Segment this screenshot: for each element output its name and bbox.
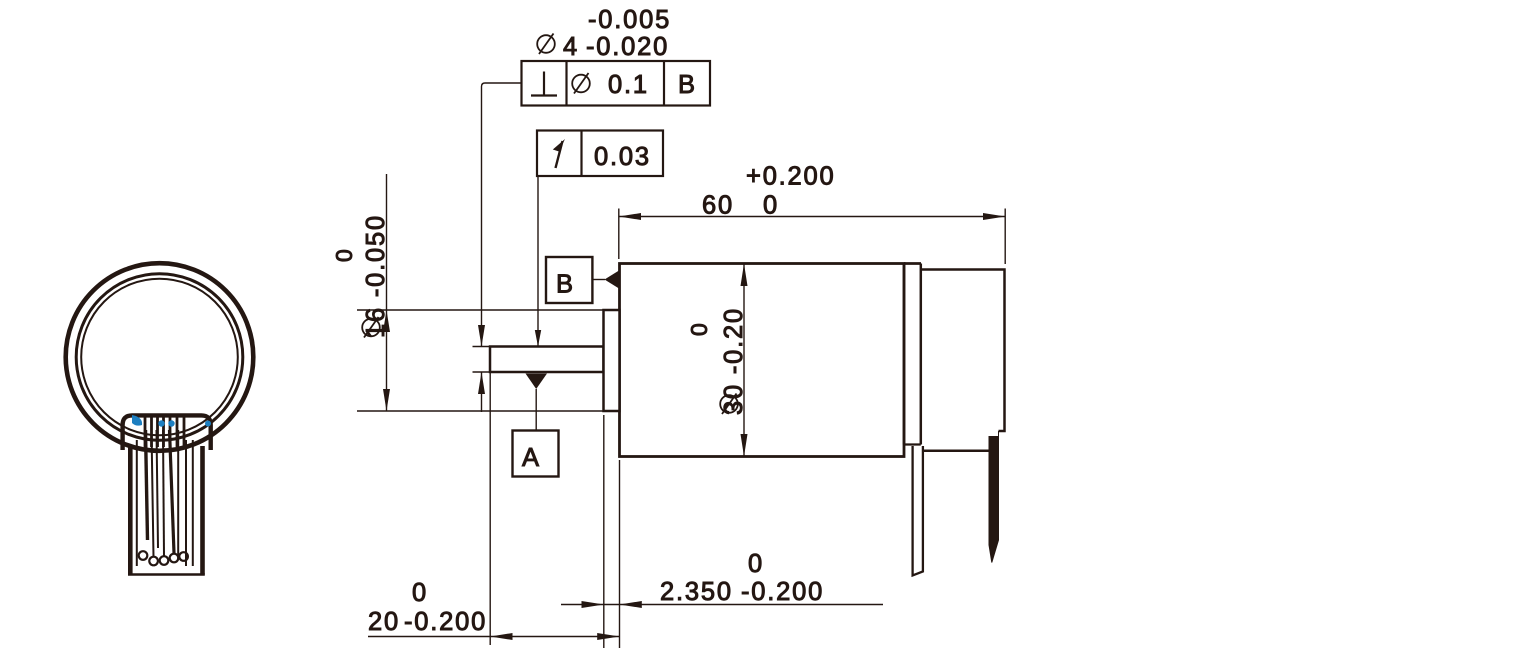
svg-text:-0.020: -0.020 (586, 33, 669, 61)
svg-text:B: B (556, 271, 575, 299)
svg-text:20: 20 (368, 608, 400, 636)
svg-text:0: 0 (763, 192, 779, 220)
svg-text:0: 0 (686, 322, 712, 336)
svg-text:0: 0 (331, 248, 357, 262)
svg-text:30 -0.20: 30 -0.20 (720, 307, 748, 415)
svg-text:A: A (522, 444, 541, 472)
svg-text:+0.200: +0.200 (746, 163, 836, 191)
svg-text:0: 0 (412, 579, 428, 607)
svg-text:0: 0 (748, 550, 764, 578)
svg-text:-0.005: -0.005 (588, 6, 671, 34)
svg-text:-0.200: -0.200 (404, 608, 487, 636)
svg-text:4: 4 (563, 33, 579, 61)
svg-text:60: 60 (702, 192, 734, 220)
svg-text:B: B (678, 71, 697, 99)
svg-text:2.350: 2.350 (660, 578, 733, 606)
svg-text:-0.200: -0.200 (741, 578, 824, 606)
svg-text:0.03: 0.03 (594, 143, 651, 171)
svg-text:0.1: 0.1 (608, 71, 649, 99)
